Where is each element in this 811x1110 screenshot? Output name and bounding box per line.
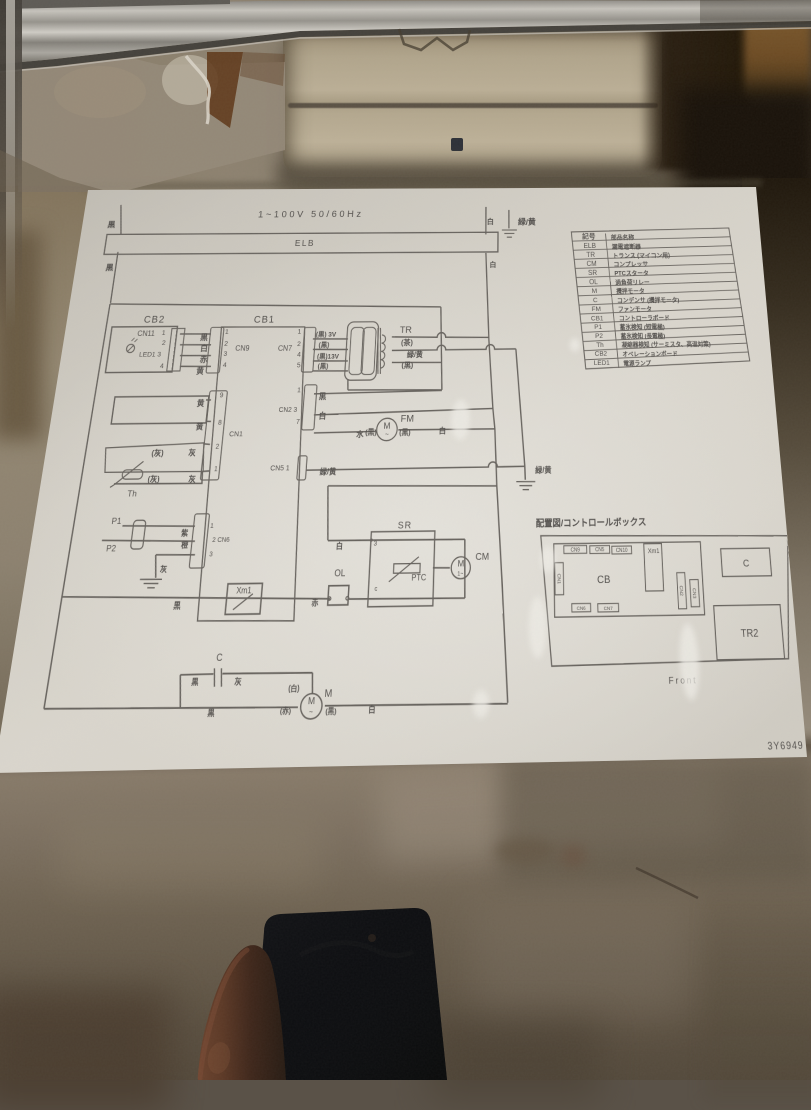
svg-text:白: 白 [318,410,326,421]
svg-text:M: M [383,420,390,431]
svg-text:黒: 黒 [200,332,209,342]
svg-text:FM: FM [592,306,601,314]
svg-text:過負荷リレー: 過負荷リレー [614,278,650,287]
svg-text:FM: FM [400,412,414,424]
svg-text:CN3: CN3 [691,588,697,598]
svg-text:Th: Th [596,342,604,349]
svg-text:漏電遮断器: 漏電遮断器 [612,242,642,251]
svg-text:灰: 灰 [234,676,242,688]
svg-text:3: 3 [373,540,377,548]
svg-text:2: 2 [161,340,166,347]
svg-text:黄: 黄 [196,398,205,409]
svg-text:LED1 3: LED1 3 [139,352,163,359]
svg-text:水: 水 [356,428,364,439]
svg-text:(黒): (黒) [365,427,377,437]
svg-text:C: C [216,653,223,664]
svg-text:2: 2 [297,340,302,348]
svg-text:(黒) 3V: (黒) 3V [316,330,337,339]
svg-text:(灰): (灰) [151,447,164,458]
svg-text:P2: P2 [595,333,604,340]
svg-text:CN11: CN11 [137,330,156,338]
svg-text:(黒): (黒) [317,362,328,371]
svg-text:オペレーションボード: オペレーションボード [622,349,678,359]
svg-text:白: 白 [490,260,497,270]
svg-text:3: 3 [223,352,228,359]
svg-text:灰: 灰 [159,564,167,575]
svg-text:蓄氷検知 (長電極): 蓄氷検知 (長電極) [620,331,665,340]
svg-text:CN2: CN2 [679,586,685,596]
svg-text:黄: 黄 [195,421,204,432]
svg-text:CB2: CB2 [595,351,608,358]
svg-text:緑/黄: 緑/黄 [319,465,337,476]
svg-text:攪拌モータ: 攪拌モータ [616,287,645,296]
svg-text:PTCスタータ: PTCスタータ [614,269,649,278]
svg-text:c: c [374,587,378,594]
svg-text:紫: 紫 [180,528,188,538]
svg-text:CN1: CN1 [229,430,244,439]
svg-text:OL: OL [334,568,346,579]
svg-text:1~100V 50/60Hz: 1~100V 50/60Hz [258,209,364,220]
svg-text:TR2: TR2 [740,627,759,640]
svg-text:2 CN6: 2 CN6 [212,537,230,545]
svg-text:(黒)13V: (黒)13V [317,352,340,361]
svg-text:1~: 1~ [457,570,463,577]
svg-text:灰: 灰 [188,447,197,458]
svg-text:TR: TR [400,324,412,335]
svg-text:M: M [457,560,464,569]
svg-text:P2: P2 [106,545,117,554]
svg-text:1: 1 [297,328,302,336]
svg-text:1: 1 [210,523,214,531]
svg-text:緑/黄: 緑/黄 [535,464,552,475]
svg-text:黒: 黒 [105,263,115,273]
svg-text:C: C [593,297,598,305]
svg-text:CM: CM [586,261,596,269]
svg-text:9: 9 [219,392,223,399]
svg-text:8: 8 [218,420,222,427]
svg-text:黄: 黄 [196,366,205,377]
svg-text:黒: 黒 [173,601,182,612]
svg-text:(茶): (茶) [401,337,413,347]
svg-text:CN5: CN5 [595,546,605,553]
svg-text:1: 1 [161,329,166,337]
svg-text:白: 白 [439,425,447,436]
svg-text:黒: 黒 [318,391,326,402]
svg-text:(灰): (灰) [147,473,160,484]
svg-text:Xm1: Xm1 [648,548,660,556]
svg-text:4: 4 [160,363,165,370]
svg-text:4: 4 [222,362,227,369]
svg-text:ELB: ELB [583,243,596,250]
svg-text:Xm1: Xm1 [236,586,253,596]
svg-text:CM: CM [475,550,489,562]
svg-text:CB1: CB1 [253,314,275,325]
svg-text:3Y6949: 3Y6949 [767,739,804,753]
svg-text:TR: TR [586,252,595,259]
svg-text:C: C [743,557,751,569]
svg-text:2: 2 [224,340,229,348]
svg-text:CB1: CB1 [591,315,604,323]
svg-text:CN10: CN10 [616,547,629,554]
svg-text:黒: 黒 [107,219,117,230]
svg-text:ファンモータ: ファンモータ [618,304,652,313]
svg-text:M: M [324,687,332,700]
svg-text:CN2 3: CN2 3 [278,407,298,414]
svg-text:(黒): (黒) [401,360,413,370]
svg-text:CN1: CN1 [556,574,562,585]
svg-text:~: ~ [309,708,313,717]
svg-text:5: 5 [297,363,302,370]
svg-text:P1: P1 [111,517,122,526]
svg-text:ELB: ELB [294,239,315,249]
svg-text:PTC: PTC [411,574,426,584]
svg-text:蓄氷検知 (短電極): 蓄氷検知 (短電極) [620,322,666,331]
svg-text:コンプレッサ: コンプレッサ [613,260,648,269]
svg-text:(白): (白) [288,682,300,694]
svg-text:SR: SR [398,519,412,531]
svg-text:緑/黄: 緑/黄 [407,349,424,359]
svg-text:CN9: CN9 [571,546,581,553]
svg-text:配置図/コントロールボックス: 配置図/コントロールボックス [536,515,647,529]
svg-text:1: 1 [297,387,302,394]
svg-text:黒: 黒 [191,676,199,688]
svg-text:部品名称: 部品名称 [611,233,635,241]
svg-text:3: 3 [209,551,213,559]
svg-text:記号: 記号 [582,231,596,240]
svg-text:(黒): (黒) [318,340,329,349]
svg-text:~: ~ [385,432,390,439]
svg-text:M: M [592,288,598,296]
svg-text:Th: Th [127,490,138,499]
svg-text:トランス (マイコン用): トランス (マイコン用) [613,252,671,260]
svg-text:7: 7 [296,419,300,426]
svg-text:CN6: CN6 [577,604,586,611]
svg-text:CN9: CN9 [235,345,250,353]
svg-text:CB2: CB2 [143,314,166,325]
svg-text:電源ランプ: 電源ランプ [623,358,652,367]
svg-text:白: 白 [200,343,209,353]
svg-text:(黒): (黒) [399,427,411,437]
svg-text:コンデンサ (攪拌モータ): コンデンサ (攪拌モータ) [617,295,680,304]
svg-text:白: 白 [487,217,494,226]
svg-text:CB: CB [597,573,611,586]
svg-text:OL: OL [589,279,598,287]
svg-text:1: 1 [214,466,218,473]
svg-text:凝縮器検知 (サーミスタ、高温対策): 凝縮器検知 (サーミスタ、高温対策) [621,340,711,350]
svg-text:2: 2 [215,444,219,451]
svg-text:SR: SR [588,270,598,278]
svg-text:CN7: CN7 [604,604,613,611]
svg-text:白: 白 [336,541,344,552]
svg-text:4: 4 [297,352,302,359]
svg-text:CN5 1: CN5 1 [270,466,291,474]
svg-text:P1: P1 [594,324,603,331]
svg-text:1: 1 [225,328,230,336]
svg-text:CN7: CN7 [278,345,293,353]
svg-text:LED1: LED1 [594,360,611,367]
svg-text:緑/黄: 緑/黄 [518,216,536,226]
svg-text:M: M [308,697,316,707]
svg-text:コントローラボード: コントローラボード [619,313,670,322]
